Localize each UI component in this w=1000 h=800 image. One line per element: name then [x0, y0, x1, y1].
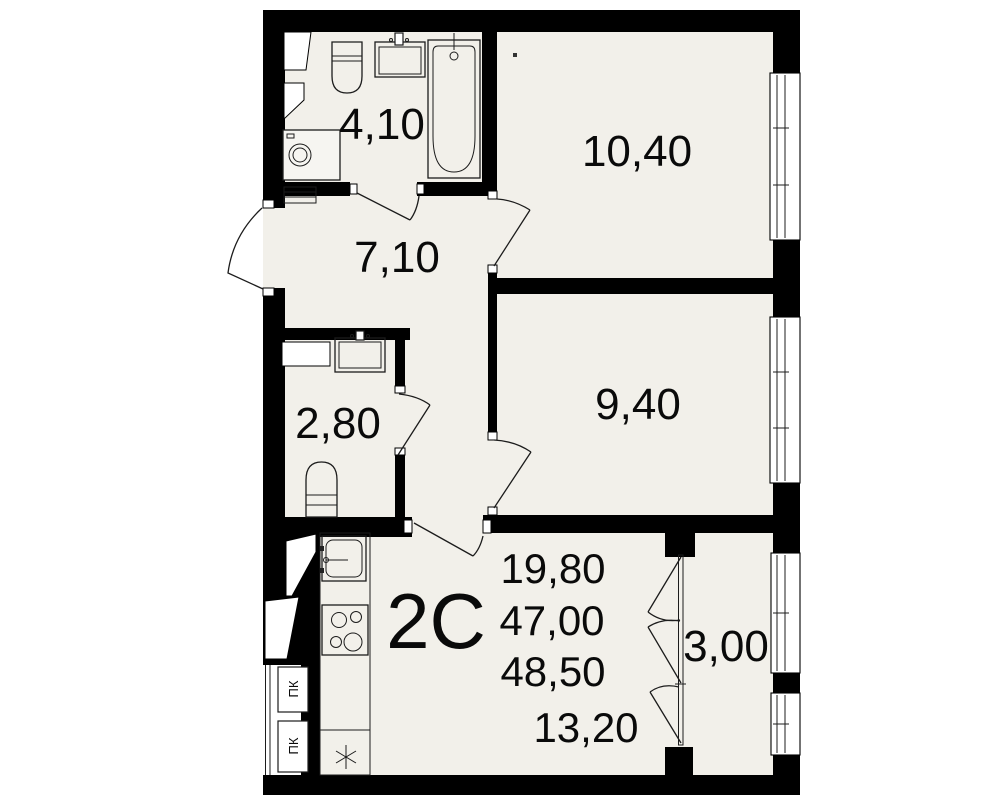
- window-bedroom2: [770, 317, 800, 483]
- bathroom-area-label: 4,10: [339, 100, 425, 149]
- vent-shaft-1: [284, 32, 311, 70]
- washing-machine-icon: [283, 130, 340, 180]
- window-balcony-lower: [771, 693, 800, 755]
- kitchen-living-area-label: 13,20: [533, 704, 638, 751]
- entrance-door: [228, 208, 263, 289]
- total-area-with-balcony-value: 48,50: [500, 648, 605, 695]
- wc-shaft: [282, 342, 330, 366]
- fire-cabinet-1-label: ПК: [286, 680, 301, 697]
- fire-cabinet-2-label: ПК: [286, 737, 301, 754]
- floor-plan-drawing: ПК ПК: [0, 0, 1000, 800]
- bedroom1-area-label: 10,40: [582, 127, 692, 176]
- utility-niche: ПК ПК: [263, 665, 320, 775]
- hallway-area-label: 7,10: [354, 233, 440, 282]
- balcony-area-label: 3,00: [683, 622, 769, 671]
- floor-plan: ПК ПК: [0, 0, 1000, 800]
- bedroom2-area-label: 9,40: [595, 380, 681, 429]
- window-balcony-upper: [771, 553, 800, 673]
- windows: [770, 73, 800, 755]
- apartment-type-label: 2С: [386, 577, 486, 665]
- living-area-value: 19,80: [500, 545, 605, 592]
- wc-area-label: 2,80: [295, 399, 381, 448]
- survey-dot: [513, 53, 517, 57]
- total-area-value: 47,00: [499, 597, 604, 644]
- window-bedroom1: [770, 73, 800, 240]
